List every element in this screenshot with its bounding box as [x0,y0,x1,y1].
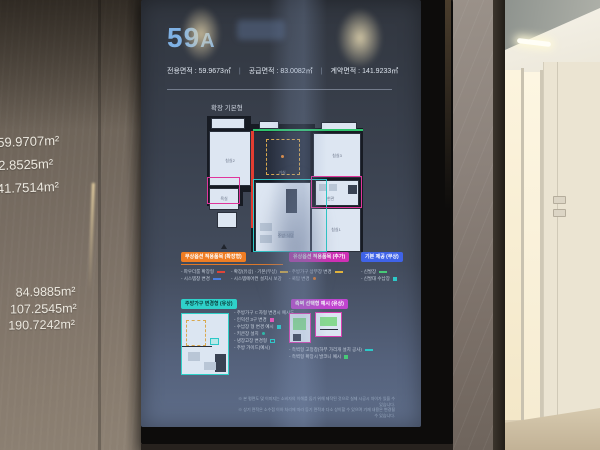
inner-wall [182,346,212,347]
living-marker-dot [281,155,284,158]
kitchen-detail-plan [181,313,229,375]
swatch-red-line [217,271,225,273]
separator: | [239,68,241,75]
swatch-blue-line [213,278,221,280]
floor-under-panel [141,444,453,450]
legend-underline [181,264,283,265]
room-label: 침실3 [332,153,342,159]
legend-item: - 쿡탑 변경 [289,275,343,282]
appliance [215,354,226,372]
door-edge-line [557,62,558,430]
unit-letter: A [200,30,215,52]
legend-badge-basic: 기본 제공 (무상) [361,252,403,262]
legend-item: - 냉장고장 변경형 [234,337,294,344]
legend-paid-items: - 주방가구 상부장 변경 - 쿡탑 변경 [289,268,343,282]
kitchen-dashed-zone [186,320,206,346]
legend-item: - 인덕션 3구 변경 [234,316,294,323]
room-utility [217,212,237,228]
legend-free-items: - 파우더룸 확장형 - 시스템창 변경 - 확장(유상) · 기본(무상) -… [181,268,288,282]
door-plate [553,196,566,204]
plan-type-label: 확장 기본형 [211,102,243,112]
footnote-line: ※ 상기 면적은 소수점 이하 처리에 따라 등기 면적과 다소 상이할 수 있… [237,407,395,418]
glowing-panel [524,72,540,420]
area-value: 84.9885m² [16,283,77,301]
fixture [188,352,200,361]
inner-wall [320,329,338,330]
area-value: 59.9707m² [0,129,60,154]
exclusive-area: 전용면적 : 59.9673㎡ [167,66,231,76]
room-label: 거실 [278,170,285,176]
model-house-hallway-photo: 59.9707m² 82.8525m² 41.7514m² 84.9885m² … [0,0,600,450]
legend-item: - 파우더룸 확장형 [181,268,225,275]
area-value: 190.7242m² [8,316,77,334]
legend-item: - 측벽형 고정창(하부 가리개 설치 공사) [289,346,373,353]
legend-item: - 수납장 형 변경 예시 [234,323,294,330]
signage-panel-bezel: 59A 전용면적 : 59.9673㎡ | 공급면적 : 83.0082㎡ | … [141,0,453,445]
wall-corner-line [98,0,101,450]
side-option-badge: 측벽 선택형 예시 (유상) [291,299,348,309]
door-plate [553,209,566,217]
adjacent-sign-areas-top: 59.9707m² 82.8525m² 41.7514m² [0,129,61,200]
unit-type-title: 59A [167,22,216,54]
legend-badge-free-option: 무상옵션 적용품목 (확장형) [181,252,246,262]
legend-item: - 주방가구 ㄷ자형 변경시 예시도 [234,309,294,316]
main-floor-plan: 침실2 거실 침실3 현관 침실1 [207,116,363,252]
cyan-option-zone [210,338,219,345]
swatch-teal-dot [262,332,265,335]
supply-area: 공급면적 : 83.0082㎡ [249,66,313,76]
area-value: 82.8525m² [0,152,61,177]
balcony [211,118,245,129]
glowing-panel [505,70,521,420]
swatch-yellow-line [335,271,343,273]
swatch-cyan-outline-box [270,339,275,343]
contract-area: 계약면적 : 141.9233㎡ [330,66,398,76]
green-zone [320,317,337,326]
legend-item: - 키큰장 설치 [234,330,294,337]
legend-item: - 시스템창 변경 [181,275,225,282]
balcony [259,121,279,129]
white-door [543,62,600,430]
swatch-green-box [344,355,348,359]
kitchen-detail-badge: 주방가구 변경형 (유상) [181,299,237,309]
side-option-plan-2 [315,312,342,337]
adjacent-sign-areas-bottom: 84.9885m² 107.2545m² 190.7242m² [6,283,78,334]
side-option-items: - 측벽형 고정창(하부 가리개 설치 공사) - 측벽형 확장시 발코니 예시 [289,346,373,360]
ceiling-light-glare [337,8,383,68]
legend-item: - 주방 가이드(예시) [234,344,294,351]
bezel-light-glint [445,0,451,210]
room-label: 침실2 [225,158,235,164]
legend-item: - 주방가구 상부장 변경 [289,268,343,275]
swatch-yellow-line [280,271,288,273]
swatch-green-line [379,271,387,273]
area-value: 107.2545m² [10,300,77,318]
swatch-cyan-line [365,349,373,351]
legend-item: - 확장(유상) · 기본(무상) [231,268,288,275]
swatch-pink-box [270,318,274,322]
legend-item: - 신발대 수납장 [361,275,397,282]
side-option-plan-1 [289,313,311,343]
overlay-magenta-box-left [207,177,240,204]
room-bedroom3: 침실3 [313,133,361,178]
legend-item: - 시스템에어컨 설치시 보강 [231,275,288,282]
bright-corridor [505,0,600,450]
unit-number: 59 [167,22,200,53]
legend-badge-paid-option: 유상옵션 적용품목 (추가) [289,252,349,262]
kitchen-detail-items: - 주방가구 ㄷ자형 변경시 예시도 - 인덕션 3구 변경 - 수납장 형 변… [234,309,294,351]
legend-item: - 측벽형 확장시 발코니 예시 [289,353,373,360]
room-living: 거실 [253,131,311,180]
swatch-orange-dot [313,277,316,280]
header-divider [167,89,392,90]
separator: | [321,68,323,75]
green-zone [293,318,306,330]
room-label: 침실1 [331,227,341,233]
marble-pillar [453,0,495,450]
area-value: 41.7514m² [0,175,61,200]
signage-screen: 59A 전용면적 : 59.9673㎡ | 공급면적 : 83.0082㎡ | … [141,0,421,427]
overlay-magenta-box-right [311,176,362,208]
swatch-cyan-box [393,277,397,281]
footnotes: ※ 본 평면도 및 이미지는 소비자의 이해를 돕기 위해 제작된 것으로 실제… [237,396,395,418]
legend-basic-items: - 신발장 - 신발대 수납장 [361,268,397,282]
area-info-row: 전용면적 : 59.9673㎡ | 공급면적 : 83.0082㎡ | 계약면적… [167,66,398,76]
plan-marker-triangle [221,244,227,249]
swatch-cyan-box [277,325,281,329]
legend-item: - 신발장 [361,268,397,275]
footnote-line: ※ 본 평면도 및 이미지는 소비자의 이해를 돕기 위해 제작된 것으로 실제… [237,396,395,407]
fixture-dark [293,334,301,341]
dim-reflection [237,20,285,40]
overlay-green-line [253,129,363,131]
fixture [204,362,216,370]
